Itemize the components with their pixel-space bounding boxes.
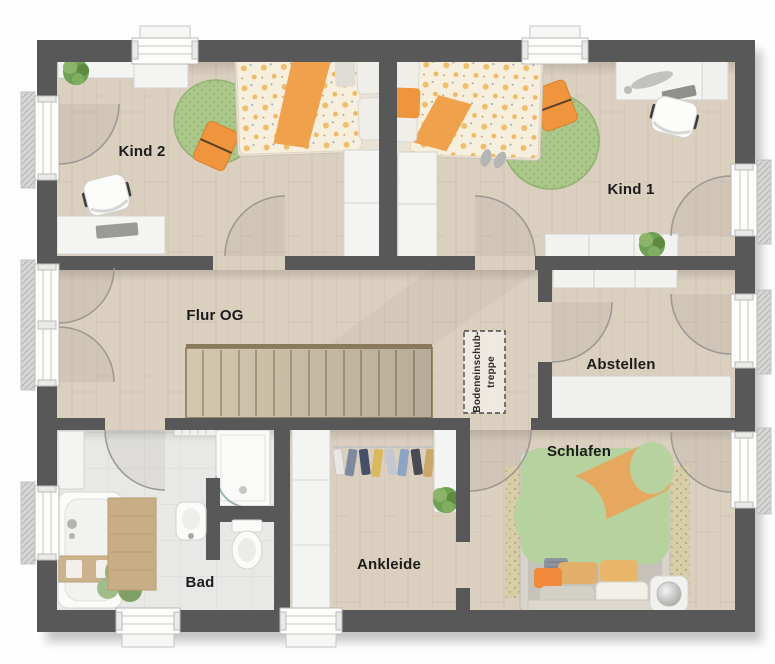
tall-cabinet (292, 424, 330, 608)
wall-bad-top-left (57, 418, 105, 430)
room-label-schlafen: Schlafen (547, 443, 611, 460)
toilet (232, 520, 262, 569)
bathroom-cabinet (58, 431, 84, 489)
room-label-kind1: Kind 1 (607, 181, 654, 198)
attic-hatch-label-line2: treppe (486, 356, 497, 388)
wall-flur-abstellen-top (538, 270, 552, 302)
single-bed (388, 47, 544, 160)
plant-icon (433, 487, 459, 513)
wall-kind1-flur (535, 256, 735, 270)
window-ankleide-bottom (280, 608, 342, 647)
room-label-kind2: Kind 2 (118, 143, 165, 160)
speaker-icon (650, 576, 688, 612)
bath-mat (108, 498, 156, 590)
window-flur-left-double (21, 260, 59, 390)
sideboard (553, 267, 677, 288)
desk-side-cabinet (702, 60, 728, 100)
shower (216, 430, 270, 508)
window-kind2-top (132, 26, 198, 64)
wall-abstellen-schlafen (531, 418, 735, 430)
attic-hatch-annotation: Bodeneinschub- treppe (464, 331, 505, 413)
plant-icon (639, 232, 665, 258)
room-label-ankleide: Ankleide (357, 556, 421, 573)
stair-shading (186, 348, 432, 418)
wall-bad-ankleide (274, 430, 290, 610)
room-label-abstellen: Abstellen (586, 356, 655, 373)
attic-hatch-outline (464, 331, 505, 413)
wall-ankleide-schlafen-stub (456, 588, 470, 610)
hanging-clothes (333, 448, 449, 477)
window-kind1-top (522, 26, 588, 64)
window-kind2-left (21, 92, 59, 188)
room-label-bad: Bad (186, 574, 215, 591)
shower-drain-icon (239, 486, 247, 494)
floor-plan-canvas: Bodeneinschub- treppe Kind 2 Kind 1 Flur… (0, 0, 775, 664)
floor-plan-page: Bodeneinschub- treppe Kind 2 Kind 1 Flur… (0, 0, 775, 664)
bed-pillow-orange (393, 88, 420, 119)
window-abstellen-right (731, 290, 771, 374)
room-schlafen-furniture (506, 441, 690, 612)
basin-faucet-icon (188, 533, 194, 539)
wall-flur-south (165, 418, 458, 430)
window-bad-bottom (116, 608, 180, 647)
wall-kind2-flur-right (285, 256, 475, 270)
desk-item (624, 86, 632, 94)
wall-kind2-flur-left (57, 256, 213, 270)
wall-kind2-kind1 (379, 62, 397, 270)
plant-icon (63, 59, 89, 85)
window-kind1-right (731, 160, 771, 244)
window-bad-left (21, 482, 59, 564)
attic-hatch-label-line1: Bodeneinschub- (472, 331, 483, 412)
stair-railing (186, 344, 432, 348)
bathtub-faucet-icon (67, 519, 77, 529)
staircase (186, 344, 432, 418)
storage-cabinet (548, 376, 731, 418)
wall-ankleide-schlafen (456, 418, 470, 542)
window-schlafen-right (731, 428, 771, 514)
room-label-flur: Flur OG (186, 307, 243, 324)
washbasin (176, 502, 206, 540)
